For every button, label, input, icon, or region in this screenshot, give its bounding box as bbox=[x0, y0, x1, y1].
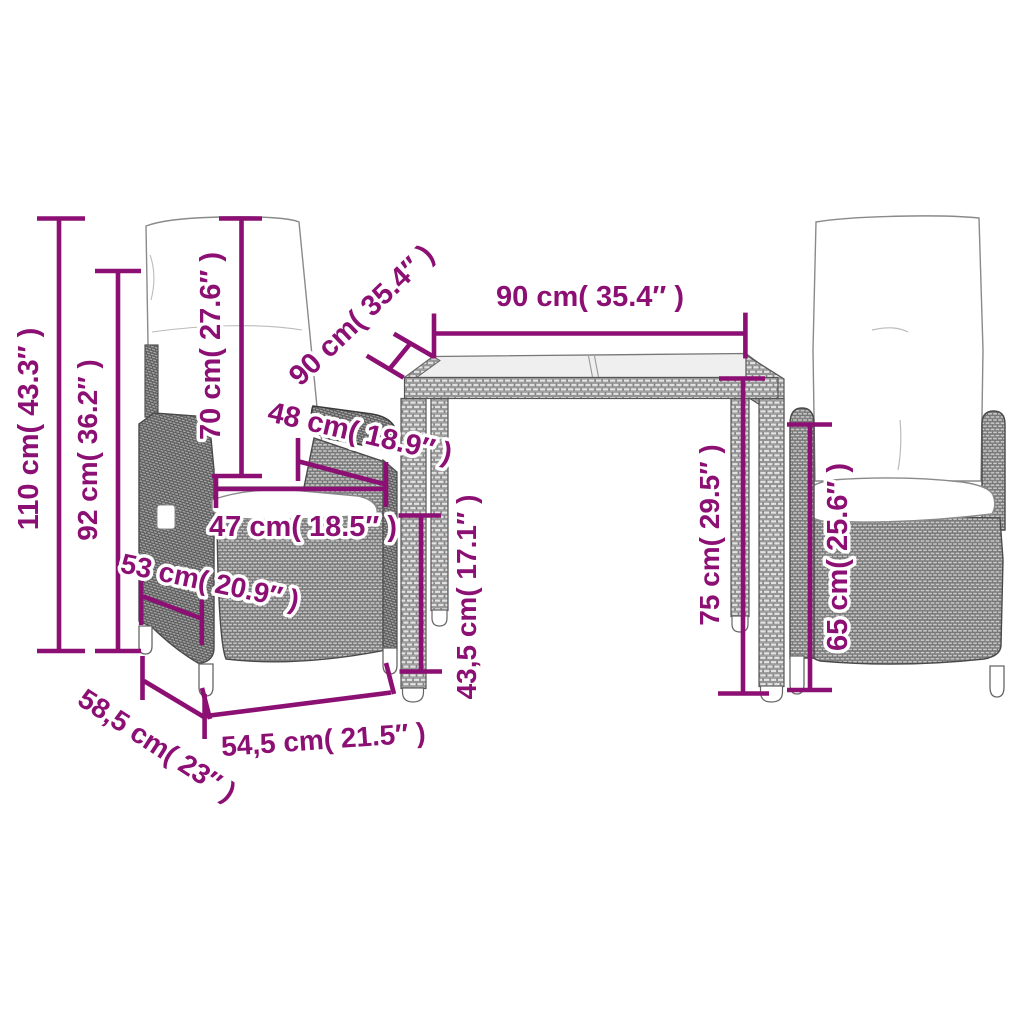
svg-text:110 cm( 43.3″ ): 110 cm( 43.3″ ) bbox=[13, 328, 45, 531]
svg-text:70 cm( 27.6″ ): 70 cm( 27.6″ ) bbox=[195, 252, 227, 440]
svg-text:90 cm( 35.4″ ): 90 cm( 35.4″ ) bbox=[496, 281, 684, 313]
svg-text:65 cm( 25.6″ ): 65 cm( 25.6″ ) bbox=[822, 463, 854, 651]
svg-text:43,5 cm( 17.1″ ): 43,5 cm( 17.1″ ) bbox=[451, 495, 482, 700]
svg-text:92 cm( 36.2″ ): 92 cm( 36.2″ ) bbox=[72, 359, 103, 541]
svg-text:75 cm( 29.5″ ): 75 cm( 29.5″ ) bbox=[694, 444, 725, 626]
svg-text:47 cm( 18.5″ ): 47 cm( 18.5″ ) bbox=[209, 511, 397, 543]
